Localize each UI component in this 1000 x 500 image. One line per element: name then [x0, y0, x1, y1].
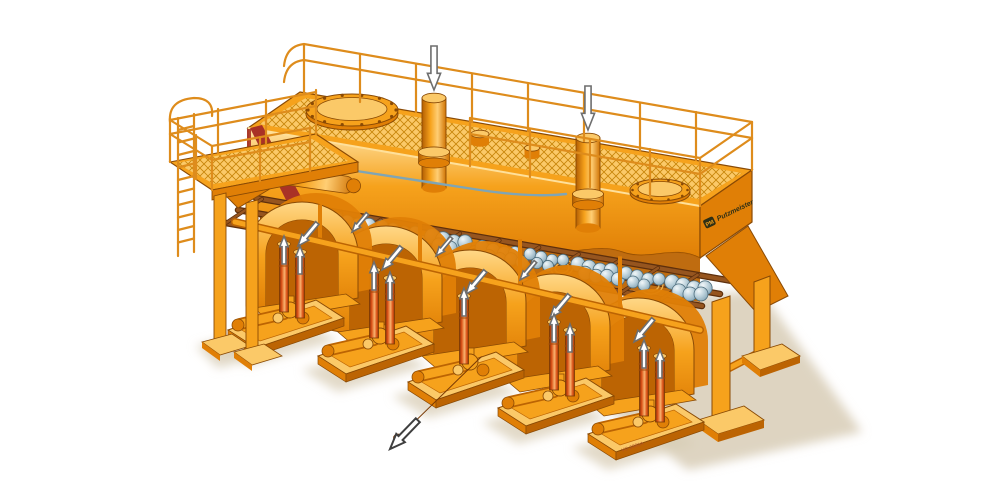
feed-inlet-pipe-2 — [573, 133, 604, 233]
manhole-cover-2 — [630, 179, 690, 204]
deck-cap-2 — [525, 145, 540, 159]
rock-stone — [653, 273, 665, 285]
rock-stone — [627, 276, 639, 288]
feed-inlet-pipe-1 — [419, 93, 450, 193]
machine-illustration-canvas: PM Putzmeister VG 0981A — [0, 0, 1000, 500]
rock-stone — [557, 254, 568, 265]
rock-stone — [694, 287, 708, 301]
manhole-cover-1 — [306, 94, 398, 130]
machine-cutaway-illustration: PM Putzmeister VG 0981A — [0, 0, 1000, 500]
discharge-arrow-icon — [386, 416, 422, 453]
deck-cap-1 — [471, 130, 489, 147]
